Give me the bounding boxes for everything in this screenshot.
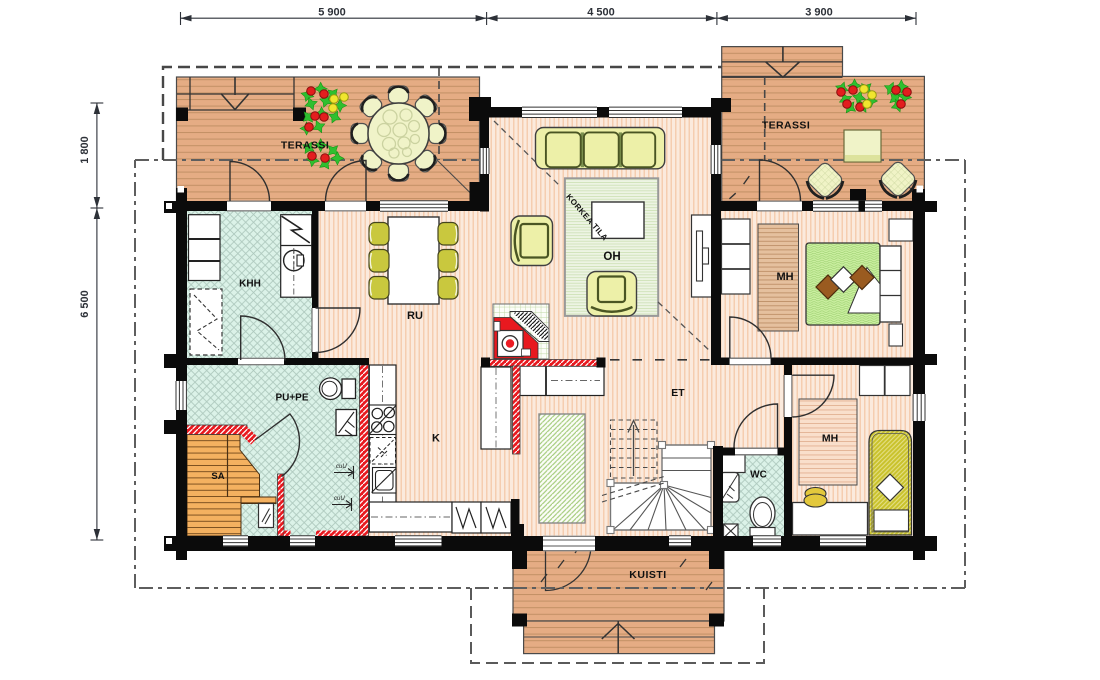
svg-text:TERASSI: TERASSI <box>762 120 810 132</box>
svg-text:6 500: 6 500 <box>79 290 91 318</box>
svg-text:OH: OH <box>603 251 620 263</box>
svg-text:cuU: cuU <box>336 464 347 470</box>
svg-text:cuU: cuU <box>334 496 345 502</box>
svg-text:SA: SA <box>211 471 224 482</box>
svg-text:PU+PE: PU+PE <box>275 393 308 404</box>
svg-text:MH: MH <box>776 271 793 283</box>
svg-text:MH: MH <box>822 433 838 445</box>
svg-text:4 500: 4 500 <box>587 7 615 19</box>
svg-text:3 900: 3 900 <box>805 7 833 19</box>
svg-text:K: K <box>432 433 440 445</box>
svg-text:KHH: KHH <box>239 279 261 290</box>
svg-text:TERASSI: TERASSI <box>281 140 329 152</box>
svg-text:RU: RU <box>407 310 423 322</box>
svg-text:WC: WC <box>750 470 767 481</box>
svg-text:ET: ET <box>671 387 685 399</box>
svg-text:5 900: 5 900 <box>318 7 346 19</box>
svg-text:1 800: 1 800 <box>79 136 91 164</box>
svg-text:KUISTI: KUISTI <box>629 569 666 581</box>
